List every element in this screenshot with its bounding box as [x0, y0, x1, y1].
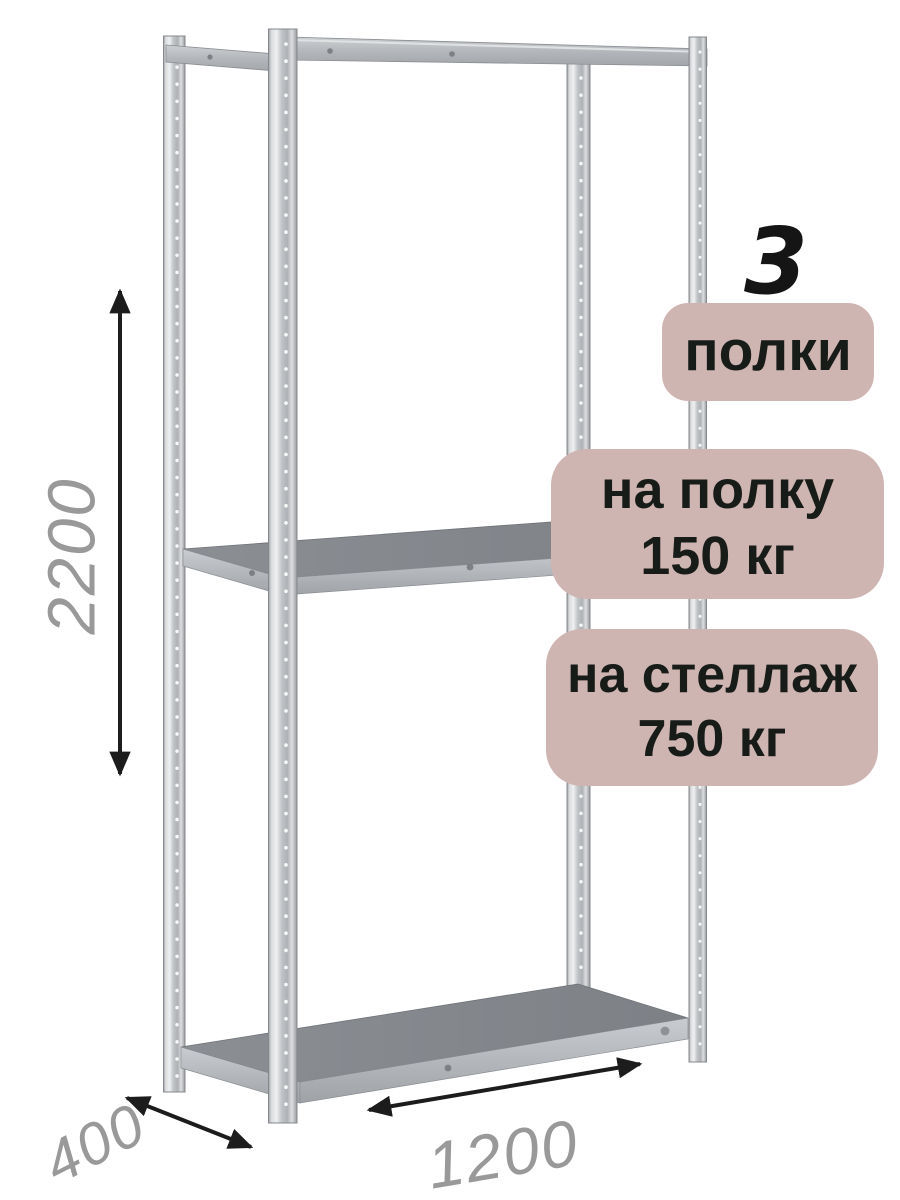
shelf-count-value: 3 [744, 216, 808, 308]
product-image: 2200 400 1200 3 полки на полку 150 кг на… [0, 0, 900, 1200]
per-shelf-load-line1: на полку [551, 458, 884, 524]
per-rack-load-line2: 750 кг [546, 708, 878, 771]
height-dimension-label: 2200 [39, 477, 106, 634]
post-front-left [269, 29, 298, 1123]
per-rack-load-badge: на стеллаж 750 кг [546, 629, 878, 786]
per-rack-load-line1: на стеллаж [546, 644, 878, 707]
shelf-bottom [181, 984, 688, 1103]
top-frame [166, 37, 707, 72]
per-shelf-load-line2: 150 кг [551, 524, 884, 590]
shelf-count-badge: полки [662, 303, 874, 401]
post-back-left [164, 36, 186, 1092]
rack-illustration [0, 0, 900, 1200]
per-shelf-load-badge: на полку 150 кг [551, 449, 884, 599]
shelf-count-label: полки [662, 317, 874, 387]
